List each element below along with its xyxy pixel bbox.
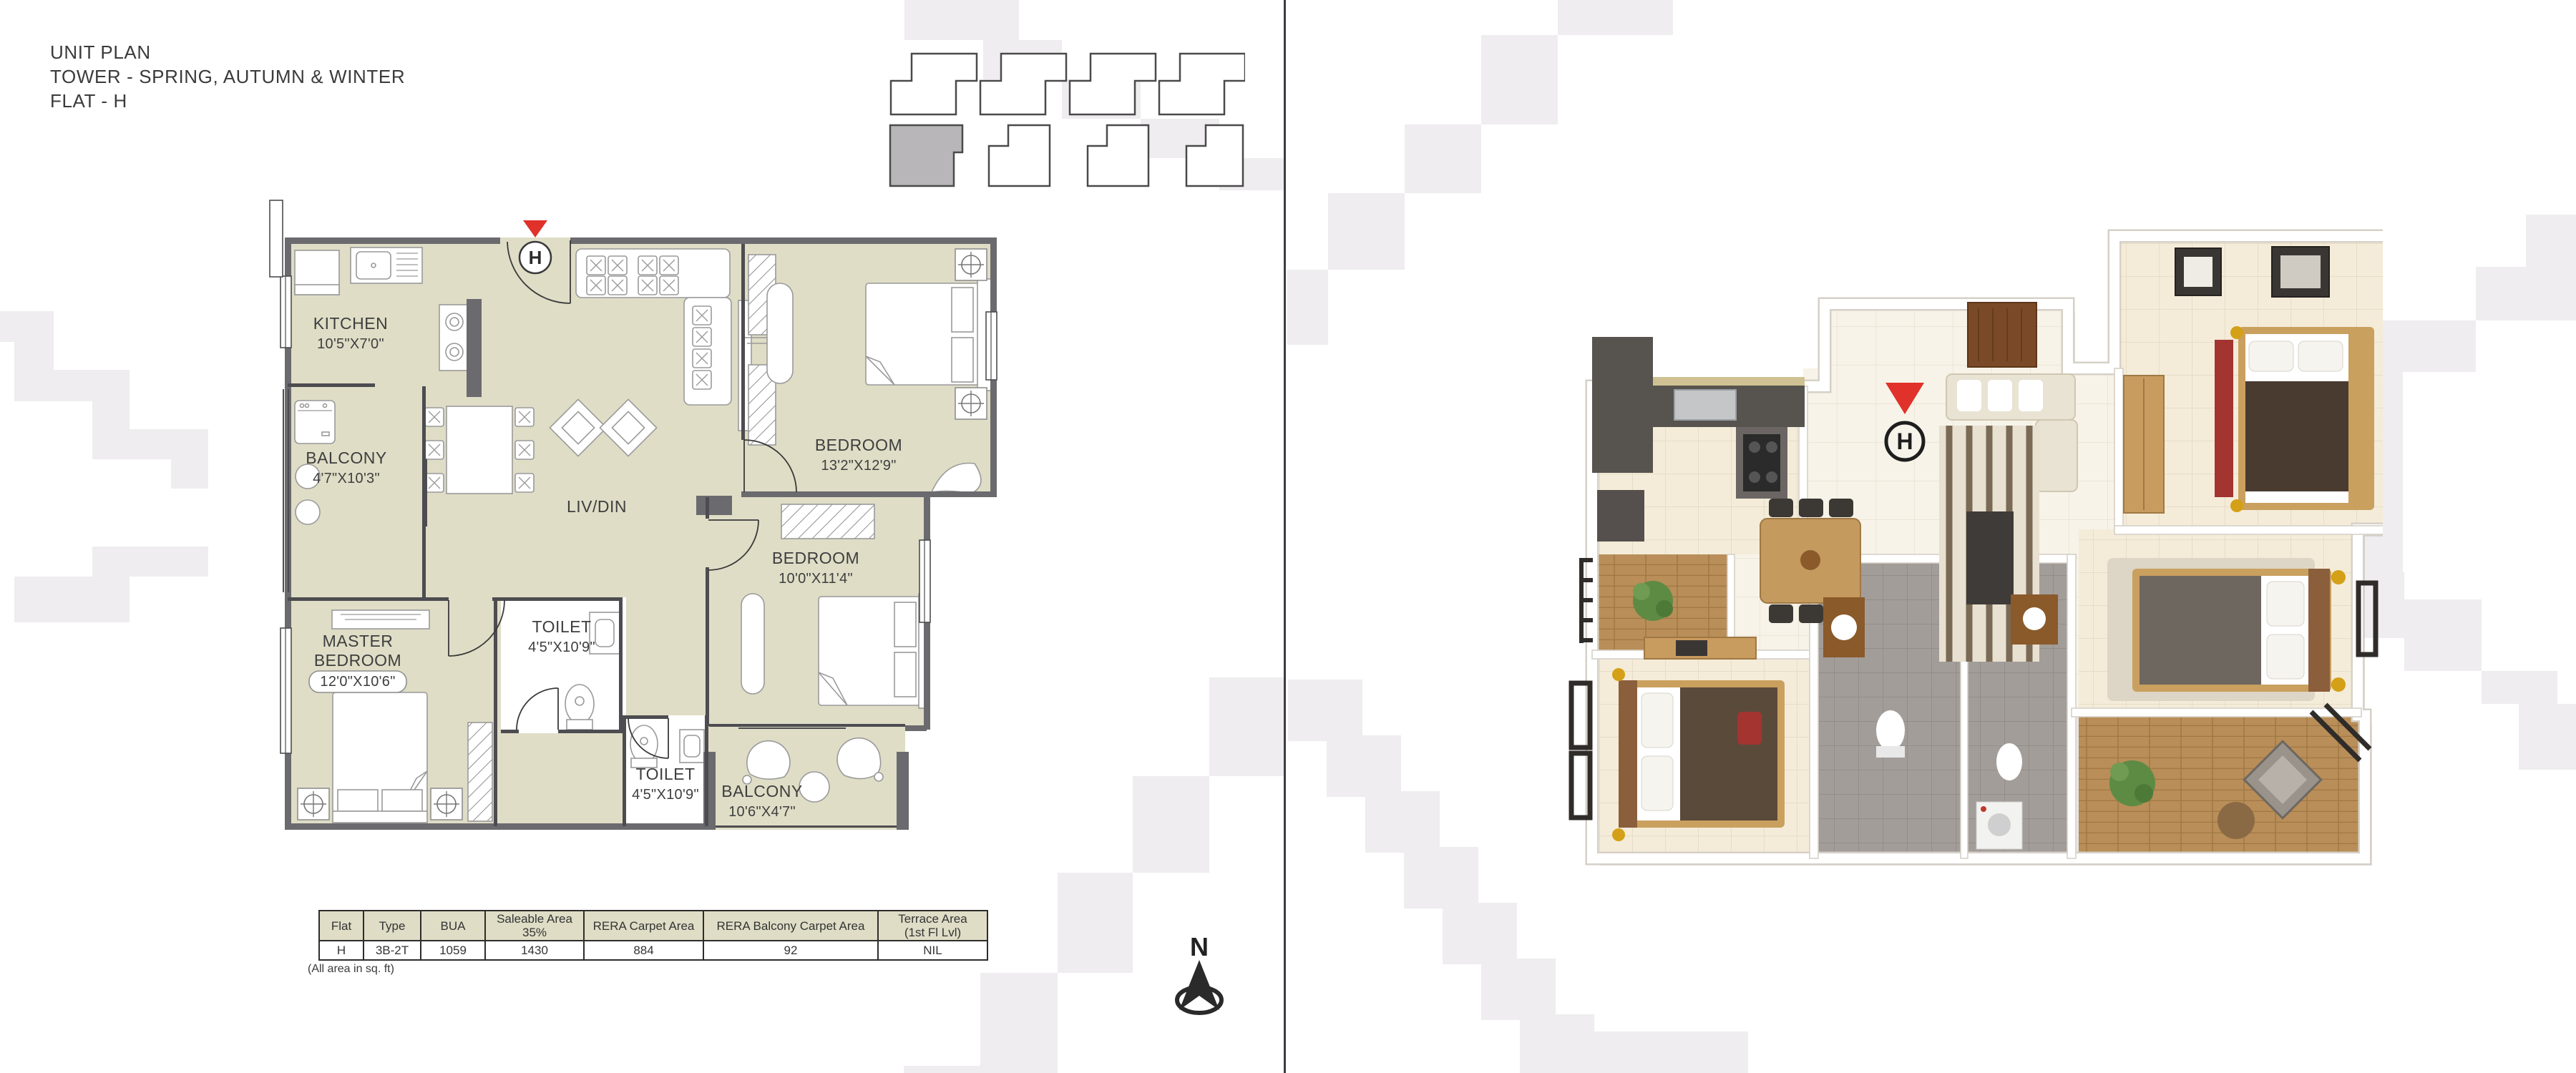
col-flat: Flat [319,911,364,941]
bed-icon [819,594,929,708]
room-dims-bedroom-top: 13'2"X12'9" [821,458,896,474]
unit-plan-page: UNIT PLAN TOWER - SPRING, AUTUMN & WINTE… [0,0,2576,1073]
cell-flat: H [319,941,364,960]
side-table-icon [955,388,987,419]
area-table-data-row: H 3B-2T 1059 1430 884 92 NIL [319,941,987,960]
washbasin-icon [680,730,704,763]
floor-plan-2d: H KITCHEN 10'5"X7'0" BALCONY 4'7"X10'3" … [266,192,1025,843]
room-label-balcony-left: BALCONY [306,449,386,467]
flat-subtitle: FLAT - H [50,89,405,113]
page-title: UNIT PLAN [50,40,405,64]
room-label-livdin: LIV/DIN [567,497,627,516]
rug-icon [741,594,764,694]
north-compass: N [1165,931,1234,1021]
side-table-icon [955,249,987,280]
bed-icon [333,692,427,823]
entry-arrow-icon [523,220,547,237]
col-bua: BUA [421,911,485,941]
room-label-master-2: BEDROOM [314,651,401,670]
stove-icon [439,305,469,371]
bed-icon [866,279,993,391]
bedroom2-3d [2107,558,2346,701]
key-plan-highlighted-unit [890,125,962,186]
panel-divider [1284,0,1286,1073]
title-block: UNIT PLAN TOWER - SPRING, AUTUMN & WINTE… [50,40,405,113]
north-label: N [1190,932,1209,961]
kitchen-sink-icon [351,248,422,283]
col-terrace: Terrace Area(1st Fl Lvl) [878,911,987,941]
room-label-bedroom-mid: BEDROOM [772,549,859,567]
room-dims-bedroom-mid: 10'0"X11'4" [779,571,853,587]
room-label-toilet-mid: TOILET [532,617,591,636]
fridge-icon [295,250,339,295]
side-table-icon [431,788,462,820]
room-label-master-1: MASTER [323,632,394,650]
area-note: (All area in sq. ft) [308,963,394,976]
area-table: Flat Type BUA Saleable Area35% RERA Carp… [318,910,988,961]
entry-flat-letter: H [529,247,542,268]
balcony-table-icon [799,772,829,802]
wc-icon [630,725,658,768]
room-dims-balcony-bottom: 10'6"X4'7" [728,804,796,820]
side-table-icon [298,788,329,820]
room-dims-toilet-bottom: 4'5"X10'9" [632,787,699,803]
wardrobe-icon [468,722,492,821]
floor-plan-3d: H [1567,211,2383,869]
wardrobe-icon [781,504,874,539]
cell-rera-balcony: 92 [703,941,878,960]
room-label-kitchen: KITCHEN [313,314,388,333]
cell-rera-carpet: 884 [584,941,703,960]
cell-terrace: NIL [878,941,987,960]
dresser-icon [332,610,429,629]
washing-machine-icon [295,401,335,444]
room-label-toilet-bottom: TOILET [635,765,695,783]
rug-icon [767,283,793,383]
dining-table-icon [425,406,534,494]
col-saleable: Saleable Area35% [485,911,584,941]
col-rera-balcony: RERA Balcony Carpet Area [703,911,878,941]
key-plan [887,49,1245,192]
planter-icon [296,500,320,524]
cell-type: 3B-2T [364,941,421,960]
col-rera-carpet: RERA Carpet Area [584,911,703,941]
room-dims-balcony-left: 4'7"X10'3" [313,471,380,486]
room-dims-kitchen: 10'5"X7'0" [317,336,384,352]
cell-saleable: 1430 [485,941,584,960]
room-dims-master: 12'0"X10'6" [320,674,395,690]
tower-subtitle: TOWER - SPRING, AUTUMN & WINTER [50,64,405,89]
col-type: Type [364,911,421,941]
area-table-header-row: Flat Type BUA Saleable Area35% RERA Carp… [319,911,987,941]
entry-marker-2d: H [519,220,551,273]
room-label-bedroom-top: BEDROOM [815,436,902,454]
room-dims-toilet-mid: 4'5"X10'9" [528,640,595,655]
runner-rug-icon [2215,340,2233,497]
wc-icon [565,685,594,730]
north-arrow-icon [1179,960,1219,1010]
room-label-balcony-bottom: BALCONY [721,782,802,800]
cell-bua: 1059 [421,941,485,960]
entry-flat-letter-3d: H [1896,428,1913,454]
